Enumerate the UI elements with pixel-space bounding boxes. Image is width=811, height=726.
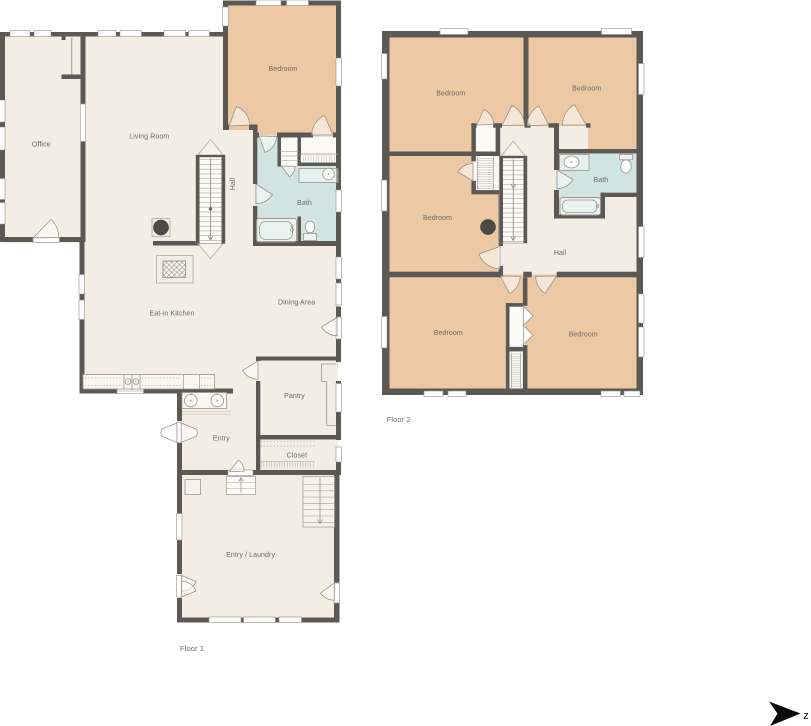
svg-text:Closet: Closet (287, 453, 307, 460)
svg-text:Bedroom: Bedroom (434, 330, 463, 337)
svg-text:Hall: Hall (230, 177, 237, 190)
svg-text:Bedroom: Bedroom (423, 215, 452, 222)
svg-text:Office: Office (32, 141, 51, 148)
svg-text:Dining Area: Dining Area (278, 299, 315, 306)
svg-text:Bedroom: Bedroom (569, 331, 598, 338)
svg-text:Bedroom: Bedroom (436, 91, 465, 98)
svg-text:Bedroom: Bedroom (268, 66, 297, 73)
svg-text:Floor 2: Floor 2 (387, 415, 411, 424)
svg-text:Bath: Bath (594, 177, 609, 184)
svg-text:Floor 1: Floor 1 (180, 644, 204, 653)
svg-text:Entry / Laundry: Entry / Laundry (226, 552, 275, 559)
svg-text:Hall: Hall (554, 250, 567, 257)
svg-text:Pantry: Pantry (284, 393, 305, 400)
svg-text:Living Room: Living Room (129, 133, 169, 140)
svg-text:Bedroom: Bedroom (572, 86, 601, 93)
svg-text:Entry: Entry (213, 435, 230, 442)
svg-text:Bath: Bath (297, 200, 312, 207)
svg-text:z: z (803, 710, 809, 722)
svg-text:Eat-in Kitchen: Eat-in Kitchen (150, 310, 195, 317)
